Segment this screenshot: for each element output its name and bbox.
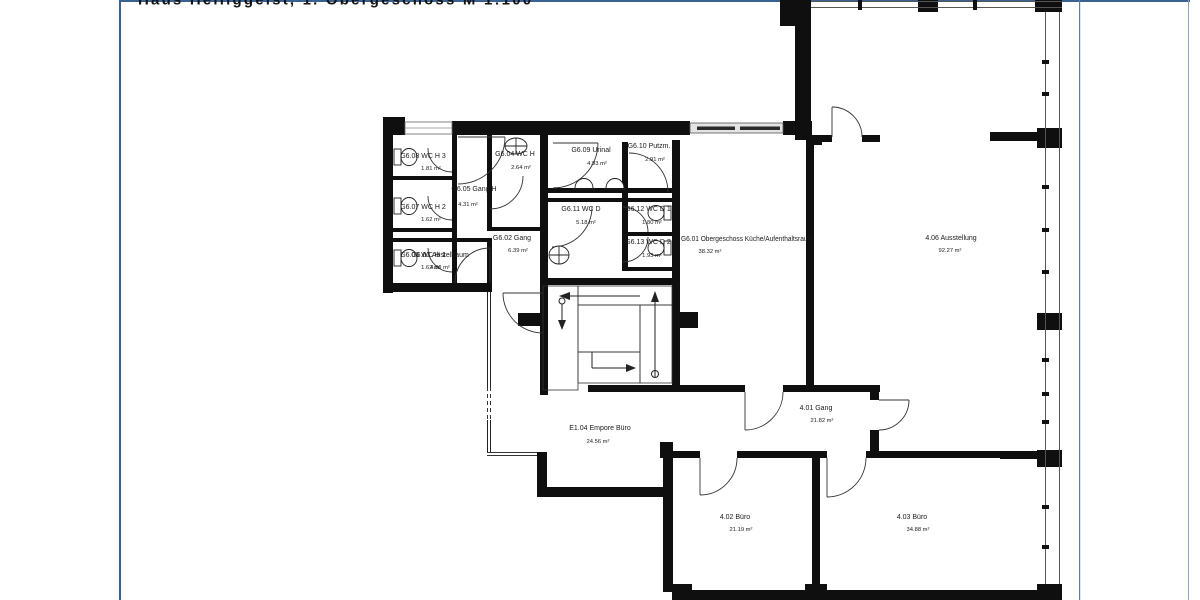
room-label-4-06: 4.06 Ausstellung 92.27 m² bbox=[925, 235, 976, 254]
svg-text:4.03 Büro: 4.03 Büro bbox=[897, 514, 927, 521]
svg-text:1.93 m²: 1.93 m² bbox=[642, 253, 662, 259]
room-label-g6-09: G6.09 Urinal 4.93 m² bbox=[571, 147, 611, 167]
stair-flight-west bbox=[543, 286, 578, 390]
svg-text:5.18 m²: 5.18 m² bbox=[576, 220, 596, 226]
svg-text:G6.12 WC D 1: G6.12 WC D 1 bbox=[625, 206, 671, 213]
svg-text:6.39 m²: 6.39 m² bbox=[508, 248, 528, 254]
door-g601-to-406 bbox=[832, 107, 862, 137]
svg-text:1.81 m²: 1.81 m² bbox=[421, 166, 441, 172]
curtain-wall-east bbox=[1042, 12, 1060, 584]
door-403 bbox=[827, 458, 866, 497]
door-401-west bbox=[745, 392, 783, 430]
svg-text:92.27 m²: 92.27 m² bbox=[939, 248, 962, 254]
room-label-4-03: 4.03 Büro 34.88 m² bbox=[897, 514, 930, 533]
svg-text:4.02 Büro: 4.02 Büro bbox=[720, 514, 750, 521]
svg-text:4.86 m²: 4.86 m² bbox=[430, 265, 450, 271]
room-label-g6-03: G6.03 Abstellraum 4.86 m² bbox=[411, 252, 469, 271]
window-g601-north bbox=[690, 123, 783, 133]
svg-text:G6.01 Obergeschoss Küche/Aufen: G6.01 Obergeschoss Küche/Aufenthaltsraum bbox=[681, 236, 813, 243]
svg-text:4.01 Gang: 4.01 Gang bbox=[800, 405, 833, 412]
stair-landing bbox=[578, 305, 640, 352]
svg-text:G6.13 WC D 2: G6.13 WC D 2 bbox=[625, 239, 671, 246]
svg-text:4.31 m²: 4.31 m² bbox=[458, 202, 478, 208]
room-label-g6-11: G6.11 WC D 5.18 m² bbox=[561, 206, 600, 226]
door-g605 bbox=[458, 137, 505, 184]
floor-plan-canvas: Haus Heiliggeist, 1. Obergeschoss M 1:10… bbox=[0, 0, 1200, 600]
svg-text:4.93 m²: 4.93 m² bbox=[587, 161, 607, 167]
room-label-4-02: 4.02 Büro 21.19 m² bbox=[720, 514, 753, 533]
windows-layer bbox=[405, 0, 1062, 584]
svg-text:G6.10 Putzm.: G6.10 Putzm. bbox=[628, 143, 671, 150]
drawing-title-clipped: Haus Heiliggeist, 1. Obergeschoss M 1:10… bbox=[138, 0, 533, 9]
room-label-e1-04: E1.04 Empore Büro 24.56 m² bbox=[569, 425, 631, 445]
svg-text:1.62 m²: 1.62 m² bbox=[421, 217, 441, 223]
svg-text:G6.05 Gang H: G6.05 Gang H bbox=[451, 186, 496, 193]
svg-text:34.88 m²: 34.88 m² bbox=[907, 527, 930, 533]
svg-text:G6.04 WC H: G6.04 WC H bbox=[495, 151, 535, 158]
door-401-east bbox=[879, 400, 909, 430]
svg-text:G6.08 WC H 3: G6.08 WC H 3 bbox=[400, 153, 446, 160]
door-402 bbox=[700, 458, 737, 495]
washbasin-icon bbox=[549, 246, 569, 264]
svg-text:4.06 Ausstellung: 4.06 Ausstellung bbox=[925, 235, 976, 242]
svg-text:G6.03 Abstellraum: G6.03 Abstellraum bbox=[411, 252, 469, 259]
svg-text:2.64 m²: 2.64 m² bbox=[511, 165, 531, 171]
urinal-icon bbox=[573, 179, 595, 190]
svg-text:2.91 m²: 2.91 m² bbox=[645, 157, 665, 163]
stair-direction-arrows bbox=[558, 291, 659, 378]
walls-layer bbox=[383, 0, 1062, 600]
window-top-left bbox=[405, 122, 452, 134]
svg-text:G6.11 WC D: G6.11 WC D bbox=[561, 206, 600, 213]
svg-text:1.80 m²: 1.80 m² bbox=[642, 220, 662, 226]
svg-text:24.56 m²: 24.56 m² bbox=[587, 439, 610, 445]
svg-text:E1.04 Empore Büro: E1.04 Empore Büro bbox=[569, 425, 631, 432]
svg-text:G6.09 Urinal: G6.09 Urinal bbox=[571, 147, 611, 154]
room-labels: G6.08 WC H 3 1.81 m² G6.07 WC H 2 1.62 m… bbox=[400, 143, 977, 533]
svg-text:21.82 m²: 21.82 m² bbox=[811, 418, 834, 424]
doors-layer bbox=[428, 107, 909, 497]
svg-text:G6.07 WC H 2: G6.07 WC H 2 bbox=[400, 204, 446, 211]
svg-text:G6.02 Gang: G6.02 Gang bbox=[493, 235, 531, 242]
room-label-g6-01: G6.01 Obergeschoss Küche/Aufenthaltsraum… bbox=[681, 236, 813, 255]
svg-text:38.32 m²: 38.32 m² bbox=[699, 249, 722, 255]
room-label-4-01: 4.01 Gang 21.82 m² bbox=[800, 405, 834, 424]
door-g611 bbox=[552, 207, 592, 247]
room-label-g6-02: G6.02 Gang 6.39 m² bbox=[493, 235, 531, 254]
staircase bbox=[543, 286, 672, 390]
room-label-g6-04: G6.04 WC H 2.64 m² bbox=[495, 151, 535, 171]
svg-text:21.19 m²: 21.19 m² bbox=[730, 527, 753, 533]
stair-flight-east bbox=[640, 305, 672, 383]
